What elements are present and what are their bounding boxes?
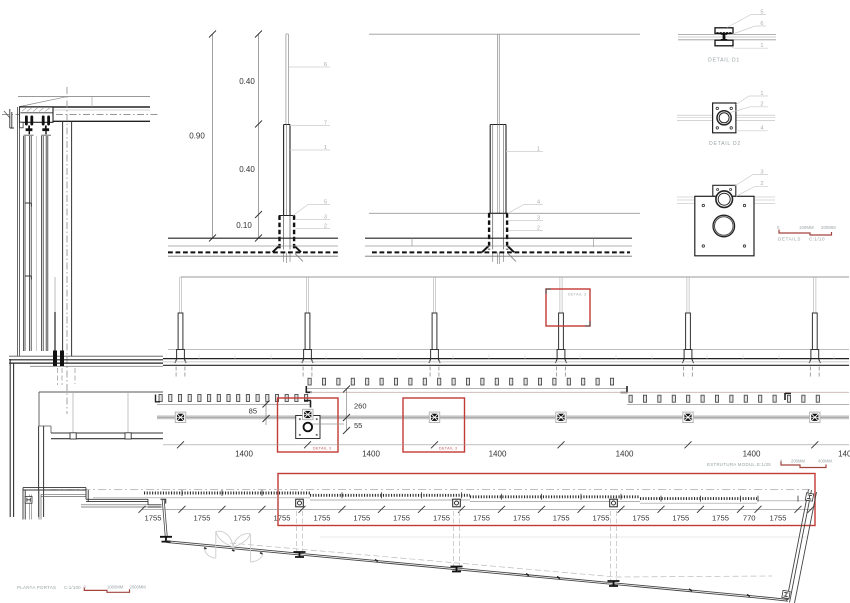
svg-text:C:1/100: C:1/100	[64, 585, 81, 590]
svg-text:DETAIL 3: DETAIL 3	[439, 447, 457, 451]
svg-text:2: 2	[537, 225, 540, 231]
svg-text:1755: 1755	[770, 514, 787, 523]
svg-text:E:1/25: E:1/25	[757, 462, 771, 467]
svg-text:DETAIL 3: DETAIL 3	[313, 447, 331, 451]
svg-text:DETAIL D1: DETAIL D1	[708, 58, 740, 64]
svg-text:7: 7	[324, 120, 327, 126]
svg-text:1755: 1755	[393, 514, 410, 523]
svg-text:260: 260	[354, 402, 367, 411]
svg-text:100MM: 100MM	[799, 225, 814, 230]
svg-text:1755: 1755	[274, 514, 291, 523]
svg-text:1400: 1400	[362, 450, 380, 459]
svg-text:0.40: 0.40	[239, 165, 255, 174]
svg-text:3: 3	[324, 214, 327, 220]
svg-text:6: 6	[760, 21, 763, 27]
svg-text:1755: 1755	[314, 514, 331, 523]
svg-text:1755: 1755	[513, 514, 530, 523]
svg-text:2: 2	[760, 181, 763, 187]
svg-text:4: 4	[760, 126, 763, 132]
svg-text:DETAILS: DETAILS	[778, 237, 801, 242]
svg-text:1: 1	[537, 146, 540, 152]
svg-text:1000MM: 1000MM	[107, 585, 124, 590]
svg-text:1: 1	[324, 145, 327, 151]
svg-text:1: 1	[760, 43, 763, 49]
svg-text:1755: 1755	[234, 514, 251, 523]
svg-text:55: 55	[354, 421, 362, 430]
svg-text:1755: 1755	[194, 514, 211, 523]
svg-text:5: 5	[760, 9, 763, 15]
svg-text:200MM: 200MM	[821, 225, 836, 230]
svg-text:1755: 1755	[433, 514, 450, 523]
svg-text:3: 3	[760, 169, 763, 175]
svg-text:2: 2	[760, 102, 763, 108]
svg-text:PLANTA PORTAS: PLANTA PORTAS	[17, 585, 56, 590]
svg-text:1400: 1400	[743, 450, 761, 459]
svg-text:0.10: 0.10	[236, 221, 252, 230]
svg-text:1400: 1400	[235, 450, 253, 459]
svg-text:1755: 1755	[473, 514, 490, 523]
svg-text:1400: 1400	[616, 450, 634, 459]
svg-text:DETAIL 3: DETAIL 3	[568, 293, 586, 297]
svg-text:2: 2	[324, 223, 327, 229]
svg-text:DETAIL D2: DETAIL D2	[709, 141, 741, 147]
svg-text:1755: 1755	[672, 514, 689, 523]
svg-text:200MM: 200MM	[791, 459, 805, 464]
svg-text:1755: 1755	[593, 514, 610, 523]
svg-text:0.40: 0.40	[239, 77, 255, 86]
svg-text:C:1/10: C:1/10	[809, 237, 825, 242]
svg-text:0.90: 0.90	[189, 132, 205, 141]
svg-text:1400: 1400	[489, 450, 507, 459]
svg-text:1: 1	[760, 91, 763, 97]
svg-text:1755: 1755	[145, 514, 162, 523]
svg-text:1755: 1755	[633, 514, 650, 523]
svg-text:2000MM: 2000MM	[130, 585, 147, 590]
svg-text:3: 3	[537, 215, 540, 221]
svg-text:6: 6	[324, 62, 327, 68]
svg-text:1400: 1400	[838, 450, 850, 459]
svg-text:770: 770	[743, 514, 756, 523]
svg-text:1755: 1755	[553, 514, 570, 523]
svg-text:400MM: 400MM	[818, 459, 832, 464]
svg-text:ESTRUTURA MODUL.: ESTRUTURA MODUL.	[707, 462, 757, 467]
svg-text:85: 85	[249, 407, 257, 416]
svg-text:1755: 1755	[353, 514, 370, 523]
svg-text:5: 5	[324, 199, 327, 205]
svg-text:1755: 1755	[712, 514, 729, 523]
